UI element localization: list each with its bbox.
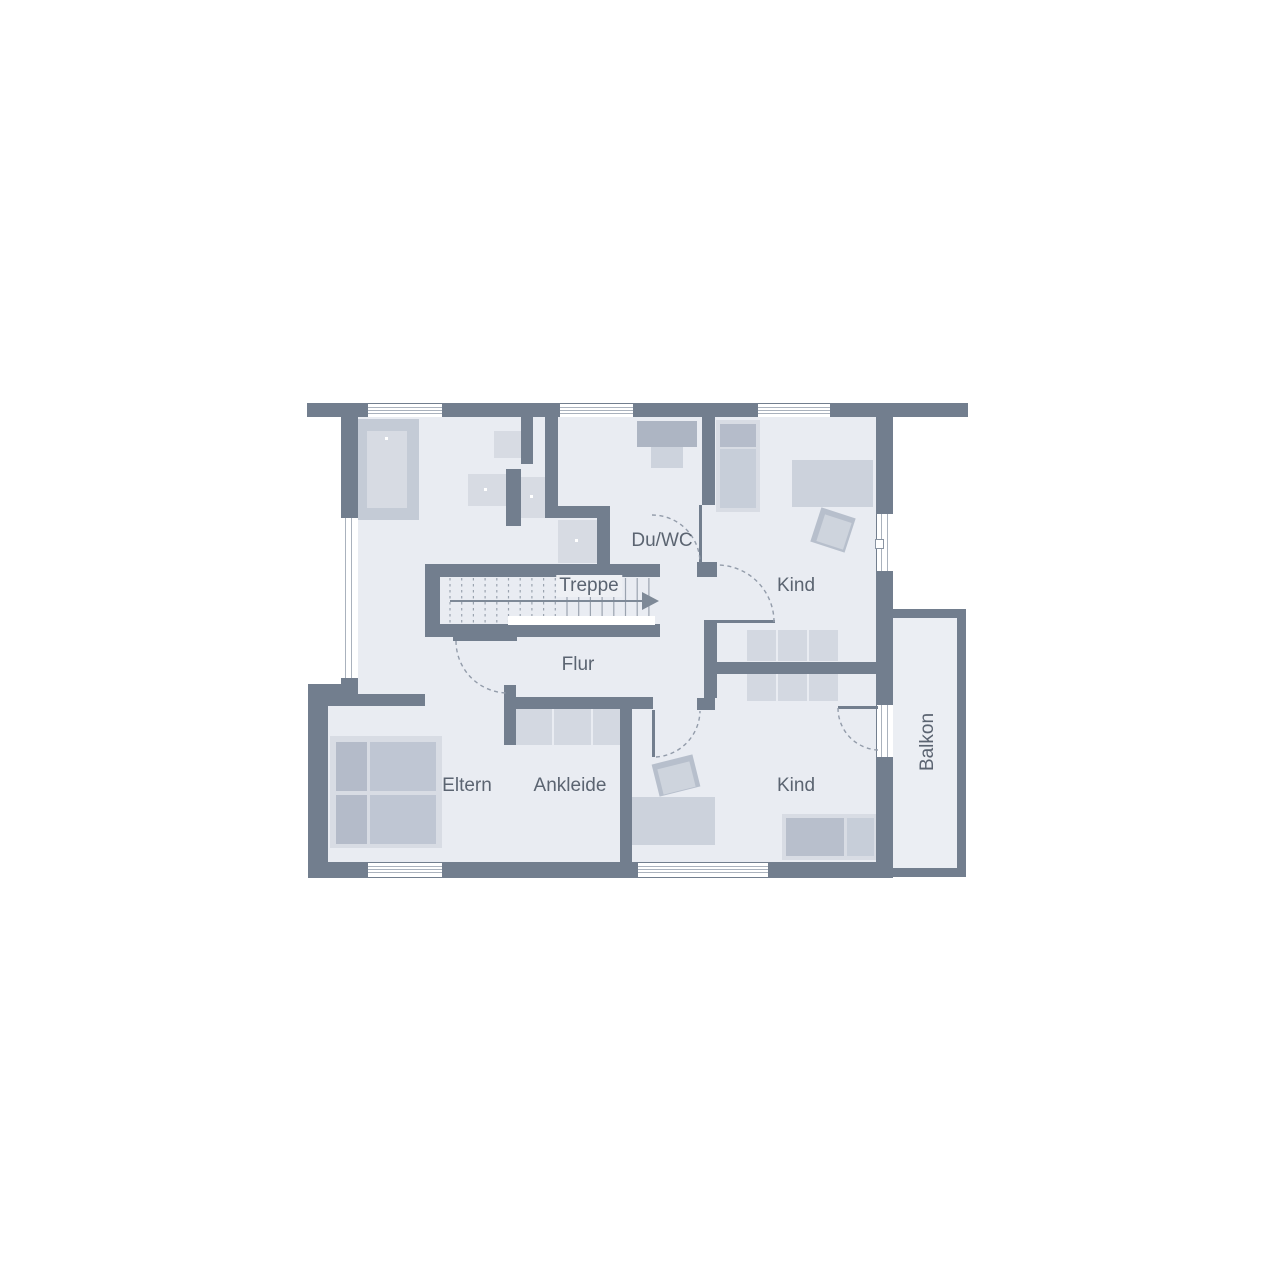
bed-parents-pillow-2	[336, 795, 367, 844]
wardrobe-ankleide	[515, 709, 630, 745]
room-label-flur: Flur	[562, 654, 595, 676]
bath-cabinet	[494, 431, 521, 458]
floor-plan: Du/WC Treppe Kind Flur Eltern Ankleide K…	[0, 0, 1280, 1280]
wardrobe-child-bottom	[747, 674, 838, 701]
wall-duwc-stub-h	[545, 506, 610, 518]
bed-child-bottom-pillow	[847, 818, 874, 856]
wall-ankleide-kind	[620, 709, 632, 862]
desk-child-top	[792, 460, 873, 507]
wardrobe-child-top	[747, 630, 838, 661]
wc-cistern	[637, 421, 697, 447]
door-balcony	[877, 705, 893, 757]
washbasin-right-dot	[530, 495, 533, 498]
bathtub-inner	[367, 431, 407, 508]
window-bottom-eltern	[368, 863, 442, 877]
wall-duwc-south-stub	[697, 562, 717, 577]
washbasin-left-dot	[484, 488, 487, 491]
wall-eltern-north	[328, 694, 425, 706]
bed-parents-pillow-1	[336, 742, 367, 791]
wall-eltern-ankleide-stub	[504, 685, 516, 745]
door-leaf-eltern	[453, 636, 510, 641]
wall-stair-top	[425, 564, 660, 577]
bathtub-drain-dot	[385, 437, 388, 440]
window-top-kind	[758, 404, 830, 417]
wall-bath-duwc	[545, 417, 558, 512]
wc-bowl	[651, 447, 683, 468]
window-bottom-kind	[638, 863, 768, 877]
desk-child-bottom	[630, 797, 715, 845]
wall-shower-stub-v	[597, 518, 610, 565]
shower-drain-dot	[575, 539, 578, 542]
window-top-bath	[368, 404, 442, 417]
washbasin-left	[468, 474, 506, 506]
window-left-bath	[341, 518, 358, 678]
wall-duwc-kind	[702, 417, 715, 505]
washbasin-right	[521, 477, 545, 518]
room-label-du-wc: Du/WC	[631, 530, 692, 552]
room-label-kind-bottom: Kind	[777, 775, 815, 797]
room-label-eltern: Eltern	[442, 775, 492, 797]
bed-child-top-pillow	[720, 424, 756, 447]
wall-between-kind-rooms	[715, 662, 876, 674]
wall-west	[308, 694, 328, 878]
balcony-wall-top	[893, 609, 966, 618]
bed-child-top-blanket	[720, 449, 756, 508]
wall-flur-kind-jamb	[697, 698, 715, 710]
wall-flur-kind	[704, 620, 717, 698]
room-label-kind-top: Kind	[777, 575, 815, 597]
bed-child-bottom-blanket	[786, 818, 844, 856]
door-leaf-balcony	[838, 706, 878, 709]
bed-parents-blanket-2	[370, 795, 436, 844]
wall-basin-stub	[506, 469, 521, 526]
wall-bath-stub-top	[521, 417, 533, 464]
balcony-wall-right	[957, 609, 966, 877]
bed-parents-blanket-1	[370, 742, 436, 791]
balcony-wall-bottom	[893, 868, 966, 877]
window-right-kind	[877, 514, 893, 571]
room-label-balkon: Balkon	[917, 713, 939, 771]
wall-right	[876, 417, 893, 878]
window-handle	[875, 539, 884, 549]
wall-ankleide-north	[504, 697, 653, 709]
room-label-treppe: Treppe	[556, 575, 622, 597]
door-leaf-kind-top	[717, 620, 775, 623]
door-leaf-duwc	[699, 505, 702, 563]
wall-left-upper	[341, 417, 358, 518]
door-leaf-kind-bottom	[652, 710, 655, 757]
window-top-duwc	[560, 404, 633, 417]
room-label-ankleide: Ankleide	[534, 775, 607, 797]
